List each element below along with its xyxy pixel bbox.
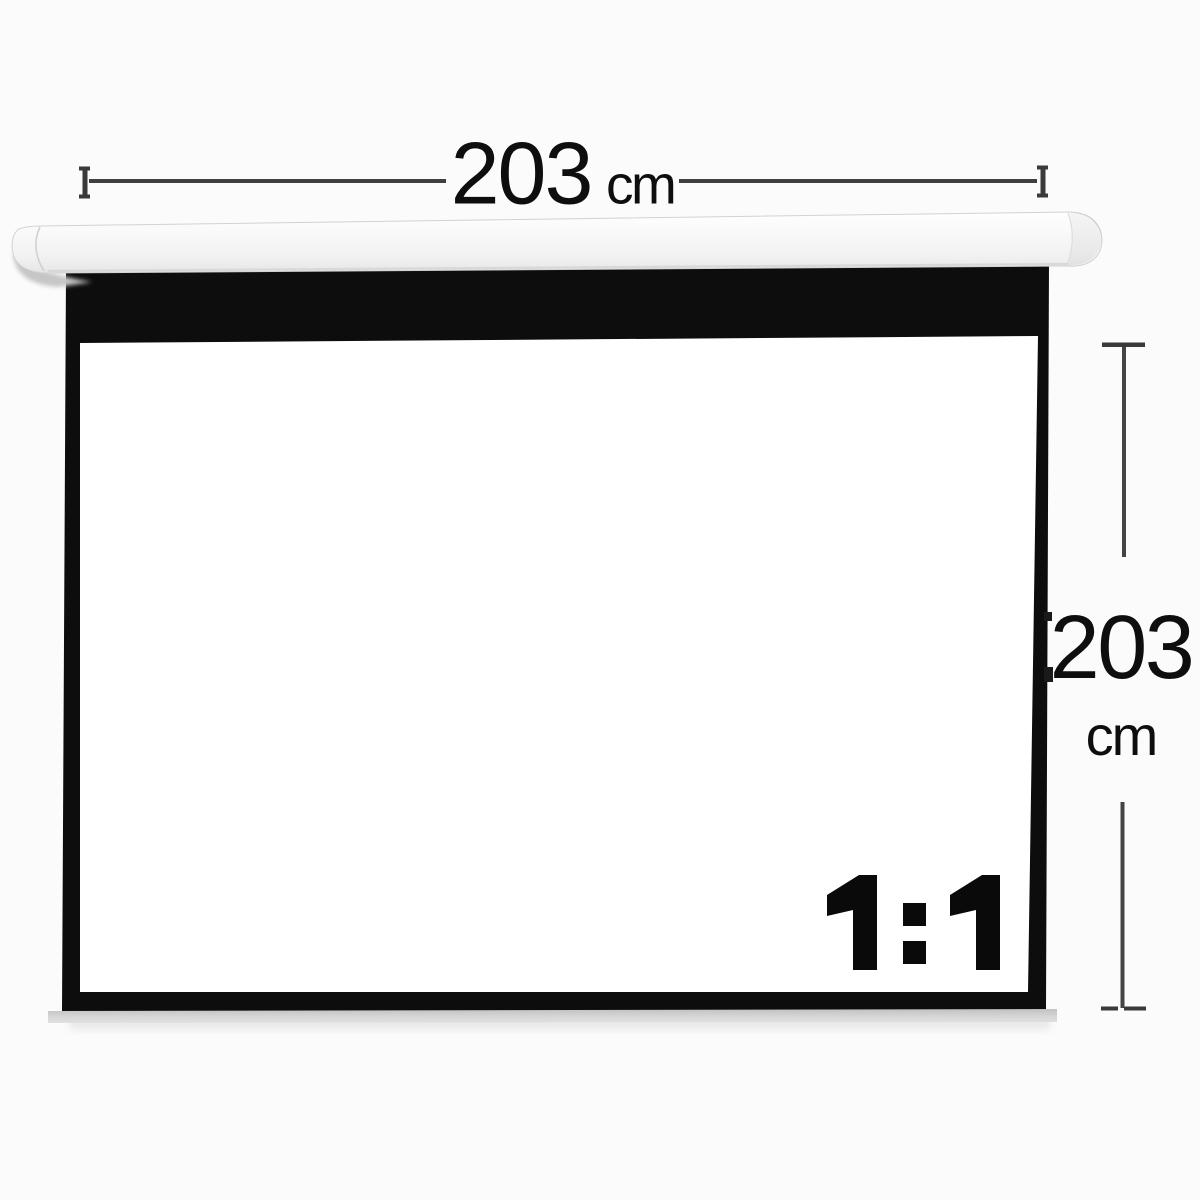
svg-text:203: 203 [451,124,592,223]
svg-text:cm: cm [1086,704,1157,767]
svg-text:203: 203 [1050,598,1193,698]
svg-text:cm: cm [606,154,674,216]
